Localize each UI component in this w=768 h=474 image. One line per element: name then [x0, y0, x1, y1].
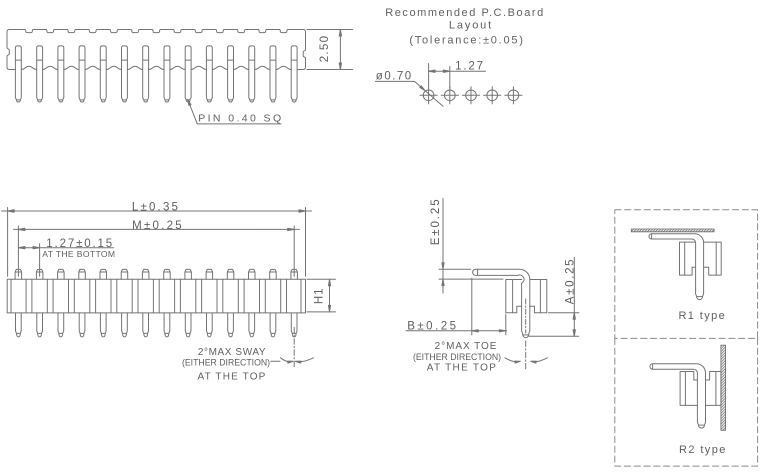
svg-text:AT THE TOP: AT THE TOP: [427, 362, 497, 373]
svg-text:ø0.70: ø0.70: [376, 70, 413, 82]
svg-text:AT THE TOP: AT THE TOP: [198, 372, 267, 383]
svg-text:H1: H1: [314, 287, 326, 304]
svg-text:2°MAX TOE: 2°MAX TOE: [435, 341, 498, 352]
svg-text:1.27: 1.27: [455, 60, 485, 72]
svg-text:(EITHER DIRECTION): (EITHER DIRECTION): [182, 357, 270, 367]
svg-text:Layout: Layout: [449, 20, 493, 32]
svg-text:(Tolerance:±0.05): (Tolerance:±0.05): [409, 34, 524, 46]
svg-text:B±0.25: B±0.25: [407, 320, 458, 332]
svg-text:E±0.25: E±0.25: [430, 198, 442, 246]
svg-text:AT THE BOTTOM: AT THE BOTTOM: [42, 249, 115, 259]
svg-text:R1 type: R1 type: [678, 310, 726, 322]
svg-text:R2 type: R2 type: [679, 444, 727, 456]
svg-text:2.50: 2.50: [319, 35, 331, 63]
svg-text:Recommended P.C.Board: Recommended P.C.Board: [385, 7, 545, 19]
svg-text:A±0.25: A±0.25: [564, 258, 576, 305]
svg-text:(EITHER DIRECTION): (EITHER DIRECTION): [413, 352, 501, 362]
svg-text:PIN 0.40 SQ: PIN 0.40 SQ: [198, 112, 283, 124]
svg-text:M±0.25: M±0.25: [132, 220, 184, 232]
svg-text:L±0.35: L±0.35: [132, 201, 180, 213]
